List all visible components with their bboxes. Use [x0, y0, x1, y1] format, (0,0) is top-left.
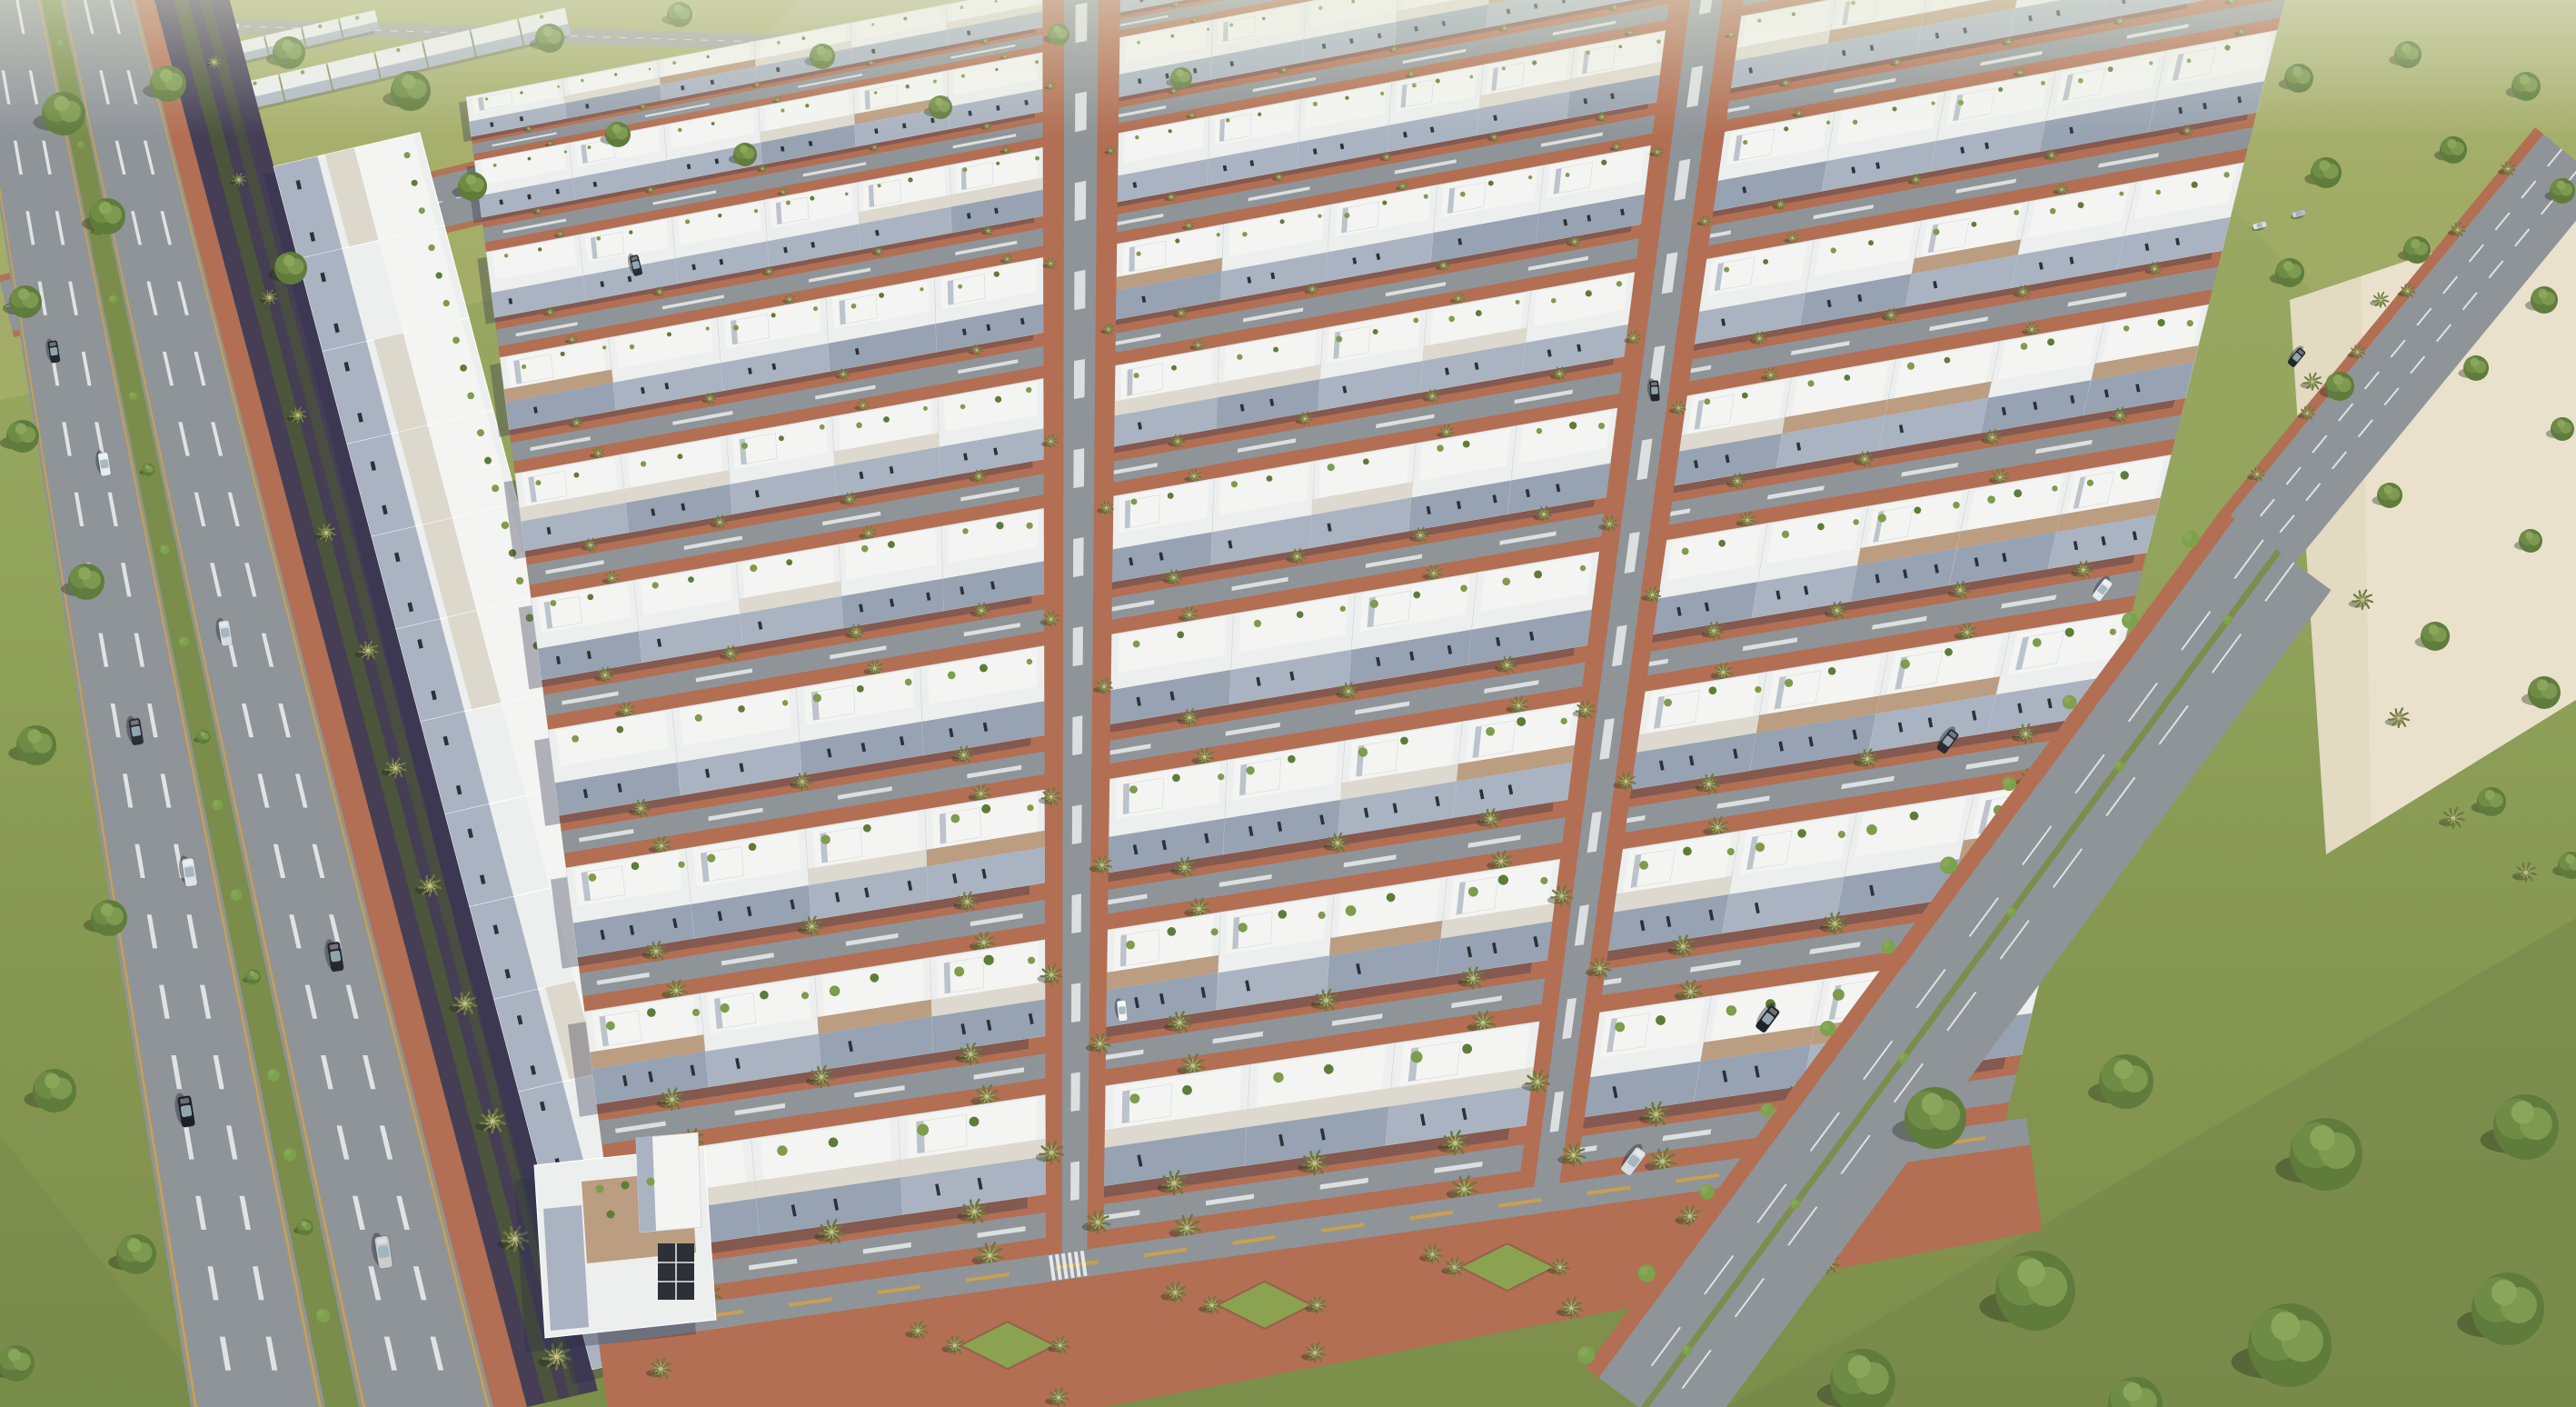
aerial-render-viewport: [0, 0, 2576, 1407]
villa-grid: [459, 0, 2340, 1314]
atmospheric-haze: [0, 0, 2576, 136]
corner-tower-villa: [514, 1133, 716, 1352]
aerial-render-scene: [0, 0, 2576, 1407]
